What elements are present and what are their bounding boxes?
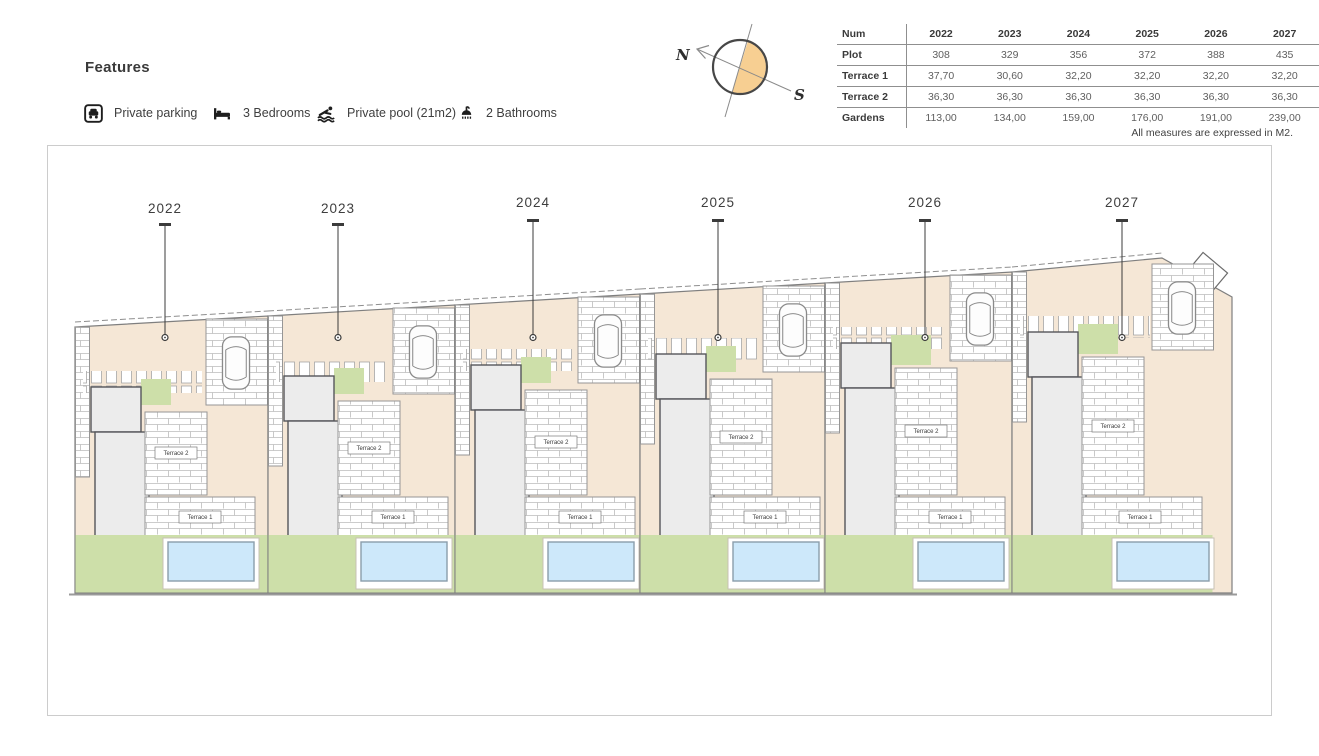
plot-number: 2023	[321, 201, 355, 216]
terrace-2-label: Terrace 2	[1092, 420, 1134, 432]
col-header: 2023	[975, 24, 1044, 45]
svg-text:Terrace 2: Terrace 2	[913, 429, 939, 435]
cell: 32,20	[1113, 66, 1182, 87]
cell: 134,00	[975, 108, 1044, 129]
terrace-1-label: Terrace 1	[1119, 511, 1161, 523]
garden-patch	[1078, 324, 1118, 354]
svg-text:Terrace 2: Terrace 2	[356, 446, 382, 452]
building-footprint	[91, 387, 141, 432]
plot-number: 2026	[908, 195, 942, 210]
row-label: Gardens	[837, 108, 906, 129]
svg-text:Terrace 1: Terrace 1	[567, 515, 593, 521]
building-footprint	[471, 365, 521, 410]
paved-strip	[641, 294, 655, 444]
cell: 36,30	[1113, 87, 1182, 108]
car-icon	[1168, 282, 1195, 334]
plot-number: 2025	[701, 195, 735, 210]
pool	[548, 542, 634, 581]
measures-table: Num 2022 2023 2024 2025 2026 2027 Plot 3…	[837, 24, 1319, 128]
features-title: Features	[85, 59, 150, 76]
building-footprint	[1032, 377, 1086, 547]
building-footprint	[475, 410, 529, 547]
plot-2025: Terrace 2 Terrace 1	[640, 278, 825, 593]
table-row: Gardens 113,00 134,00 159,00 176,00 191,…	[837, 108, 1319, 129]
terrace-2-label: Terrace 2	[905, 425, 947, 437]
col-header: 2022	[906, 24, 975, 45]
building-footprint	[841, 343, 891, 388]
paved-strip	[1013, 272, 1027, 422]
plot-number: 2027	[1105, 195, 1139, 210]
bed-icon	[212, 104, 232, 123]
svg-text:Terrace 2: Terrace 2	[163, 451, 189, 457]
col-header: 2027	[1250, 24, 1319, 45]
building-footprint	[656, 354, 706, 399]
cell: 37,70	[906, 66, 975, 87]
feature-private-pool: Private pool (21m2)	[316, 100, 456, 126]
terrace-1-label: Terrace 1	[929, 511, 971, 523]
svg-text:Terrace 1: Terrace 1	[937, 515, 963, 521]
plot-number: 2022	[148, 201, 182, 216]
pool	[168, 542, 254, 581]
plot-2024: Terrace 2 Terrace 1	[455, 289, 640, 593]
plot-callout-2022: 2022	[148, 201, 182, 341]
terrace-2-label: Terrace 2	[535, 436, 577, 448]
plot-2022: Terrace 2 Terrace 1	[75, 311, 268, 593]
paved-strip	[456, 305, 470, 455]
cell: 32,20	[1250, 66, 1319, 87]
cell: 329	[975, 45, 1044, 66]
cell: 356	[1044, 45, 1113, 66]
table-row: Terrace 1 37,70 30,60 32,20 32,20 32,20 …	[837, 66, 1319, 87]
col-header: 2026	[1182, 24, 1251, 45]
terrace-2-label: Terrace 2	[720, 431, 762, 443]
pool	[918, 542, 1004, 581]
bathrooms-icon	[458, 104, 475, 123]
building-footprint	[1028, 332, 1078, 377]
building-footprint	[845, 388, 899, 547]
svg-text:Terrace 2: Terrace 2	[728, 435, 754, 441]
car-icon	[222, 337, 249, 389]
cell: 32,20	[1044, 66, 1113, 87]
plot-number: 2024	[516, 195, 550, 210]
plot-2023: Terrace 2 Terrace 1	[268, 300, 455, 593]
building-footprint	[284, 376, 334, 421]
terrace-1-label: Terrace 1	[559, 511, 601, 523]
building-footprint	[660, 399, 714, 547]
feature-label: Private parking	[114, 106, 197, 120]
row-label: Plot	[837, 45, 906, 66]
cell: 388	[1182, 45, 1251, 66]
cell: 36,30	[906, 87, 975, 108]
car-icon	[409, 326, 436, 378]
site-plan: Terrace 2 Terrace 1 Terrace 2 Terrace 1	[47, 145, 1270, 714]
svg-text:Terrace 1: Terrace 1	[380, 515, 406, 521]
feature-bathrooms: 2 Bathrooms	[458, 100, 557, 126]
cell: 30,60	[975, 66, 1044, 87]
table-row: Terrace 2 36,30 36,30 36,30 36,30 36,30 …	[837, 87, 1319, 108]
terrace-2-label: Terrace 2	[348, 442, 390, 454]
col-header: 2024	[1044, 24, 1113, 45]
car-icon	[966, 293, 993, 345]
feature-label: 3 Bedrooms	[243, 106, 310, 120]
terrace-1-label: Terrace 1	[744, 511, 786, 523]
plot-2026: Terrace 2 Terrace 1	[825, 267, 1012, 593]
terrace-1-label: Terrace 1	[372, 511, 414, 523]
col-header: Num	[837, 24, 906, 45]
row-label: Terrace 2	[837, 87, 906, 108]
svg-text:Terrace 1: Terrace 1	[1127, 515, 1153, 521]
garden-patch	[706, 346, 736, 372]
svg-text:Terrace 2: Terrace 2	[1100, 424, 1126, 430]
cell: 159,00	[1044, 108, 1113, 129]
pool-icon	[316, 104, 336, 123]
page: Features Private parking 3 Bedrooms	[0, 0, 1319, 756]
cell: 308	[906, 45, 975, 66]
cell: 36,30	[975, 87, 1044, 108]
cell: 36,30	[1182, 87, 1251, 108]
building-footprint	[95, 432, 149, 547]
cell: 191,00	[1182, 108, 1251, 129]
svg-text:Terrace 2: Terrace 2	[543, 440, 569, 446]
cell: 113,00	[906, 108, 975, 129]
measures-footnote: All measures are expressed in M2.	[837, 127, 1293, 139]
feature-private-parking: Private parking	[84, 100, 197, 126]
col-header: 2025	[1113, 24, 1182, 45]
terrace-1-label: Terrace 1	[179, 511, 221, 523]
pool	[733, 542, 819, 581]
svg-text:Terrace 1: Terrace 1	[187, 515, 213, 521]
cell: 372	[1113, 45, 1182, 66]
garden-patch	[521, 357, 551, 383]
paved-strip	[826, 283, 840, 433]
feature-label: Private pool (21m2)	[347, 106, 456, 120]
cell: 435	[1250, 45, 1319, 66]
pool	[361, 542, 447, 581]
building-footprint	[288, 421, 342, 547]
car-icon	[779, 304, 806, 356]
parking-icon	[84, 104, 103, 123]
car-icon	[594, 315, 621, 367]
terrace-2-label: Terrace 2	[155, 447, 197, 459]
pool	[1117, 542, 1209, 581]
paved-strip	[269, 316, 283, 466]
compass-rose: N S	[660, 22, 810, 127]
cell: 32,20	[1182, 66, 1251, 87]
feature-bedrooms: 3 Bedrooms	[212, 100, 310, 126]
cell: 36,30	[1250, 87, 1319, 108]
garden-patch	[334, 368, 364, 394]
garden-patch	[141, 379, 171, 405]
cell: 36,30	[1044, 87, 1113, 108]
table-row: Plot 308 329 356 372 388 435	[837, 45, 1319, 66]
compass-south-label: S	[794, 86, 805, 104]
table-header-row: Num 2022 2023 2024 2025 2026 2027	[837, 24, 1319, 45]
cell: 239,00	[1250, 108, 1319, 129]
cell: 176,00	[1113, 108, 1182, 129]
paved-strip	[76, 327, 90, 477]
svg-text:Terrace 1: Terrace 1	[752, 515, 778, 521]
row-label: Terrace 1	[837, 66, 906, 87]
feature-label: 2 Bathrooms	[486, 106, 557, 120]
compass-north-label: N	[675, 46, 691, 64]
